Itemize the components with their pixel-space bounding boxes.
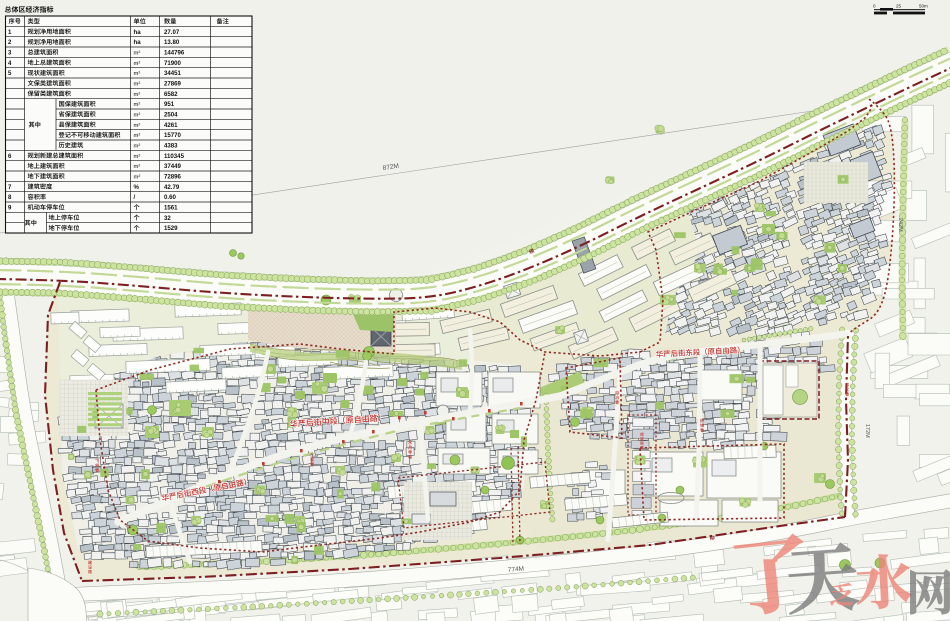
svg-text:42.79: 42.79 [164,184,180,191]
svg-text:13.80: 13.80 [164,39,180,46]
svg-text:2504: 2504 [164,112,178,119]
svg-text:144796: 144796 [164,50,185,57]
svg-text:1529: 1529 [164,225,178,232]
svg-text:27.07: 27.07 [164,29,180,36]
svg-text:172M: 172M [864,424,870,438]
svg-text:%: % [134,184,140,191]
svg-text:951: 951 [164,101,175,108]
svg-text:m²: m² [134,133,141,139]
svg-text:m²: m² [134,123,141,129]
svg-text:32: 32 [164,215,171,222]
svg-text:m²: m² [134,144,141,150]
svg-text:15770: 15770 [164,132,182,139]
svg-text:m²: m² [134,164,141,170]
svg-text:0.60: 0.60 [164,194,176,201]
svg-text:72896: 72896 [164,174,182,181]
svg-text:m²: m² [134,71,141,77]
svg-text:37449: 37449 [164,163,182,170]
svg-text:m²: m² [134,102,141,108]
svg-text:ha: ha [134,39,142,46]
svg-text:110345: 110345 [164,153,185,160]
svg-text:m²: m² [134,82,141,88]
svg-text:27869: 27869 [164,81,182,88]
svg-text:6582: 6582 [164,91,178,98]
svg-text:34451: 34451 [164,70,182,77]
svg-text:4261: 4261 [164,122,178,129]
svg-text:m²: m² [134,175,141,181]
svg-text:m²: m² [134,154,141,160]
svg-text:m²: m² [134,92,141,98]
svg-text:m²: m² [134,51,141,57]
svg-text:4383: 4383 [164,143,178,150]
svg-text:71900: 71900 [164,60,182,67]
svg-text:242M: 242M [897,218,903,232]
svg-text:50m: 50m [919,4,928,9]
svg-text:m²: m² [134,61,141,67]
svg-text:1561: 1561 [164,205,178,212]
svg-text:25: 25 [896,4,902,9]
svg-text:m²: m² [134,113,141,119]
svg-text:ha: ha [134,29,142,36]
svg-text:/: / [134,194,136,201]
